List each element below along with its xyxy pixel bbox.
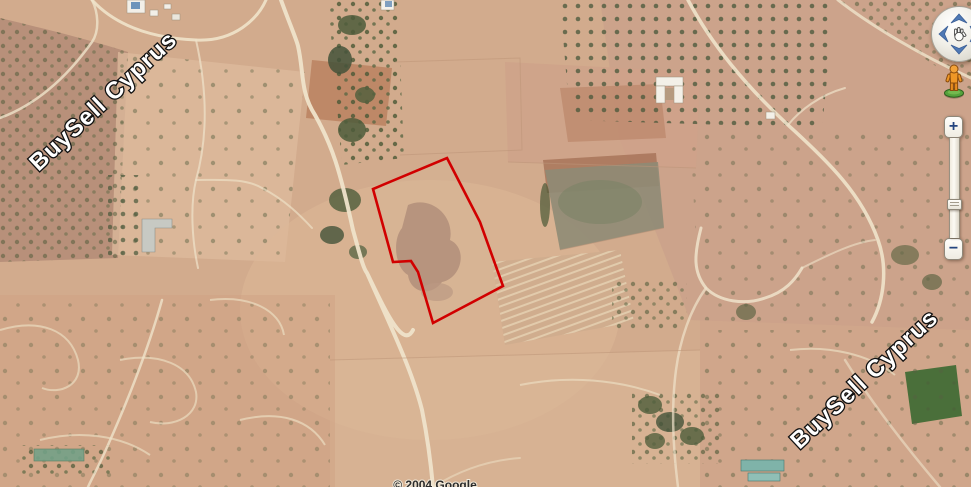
chevron-up-icon[interactable] [951,14,967,23]
zoom-slider-track[interactable] [949,138,960,238]
map-viewport[interactable]: BuySell Cyprus BuySell Cyprus © 2004 Goo… [0,0,971,487]
map-copyright: © 2004 Google [393,478,477,487]
zoom-in-button[interactable]: + [944,116,963,138]
zoom-control: + − [944,116,964,260]
pegman-streetview-icon[interactable] [941,62,967,102]
zoom-out-button[interactable]: − [944,238,963,260]
hand-icon [955,28,967,41]
pan-control[interactable] [931,6,971,62]
chevron-down-icon[interactable] [951,45,967,54]
zoom-slider-handle[interactable] [947,199,962,210]
chevron-left-icon[interactable] [939,26,948,42]
satellite-map: BuySell Cyprus BuySell Cyprus © 2004 Goo… [0,0,971,487]
